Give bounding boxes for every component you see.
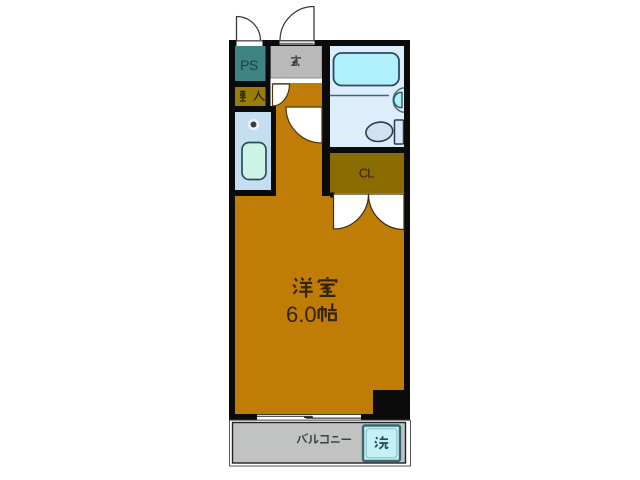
svg-text:CL: CL [359,166,374,181]
svg-text:6.0: 6.0 [286,302,317,327]
svg-text:PS: PS [240,57,258,73]
